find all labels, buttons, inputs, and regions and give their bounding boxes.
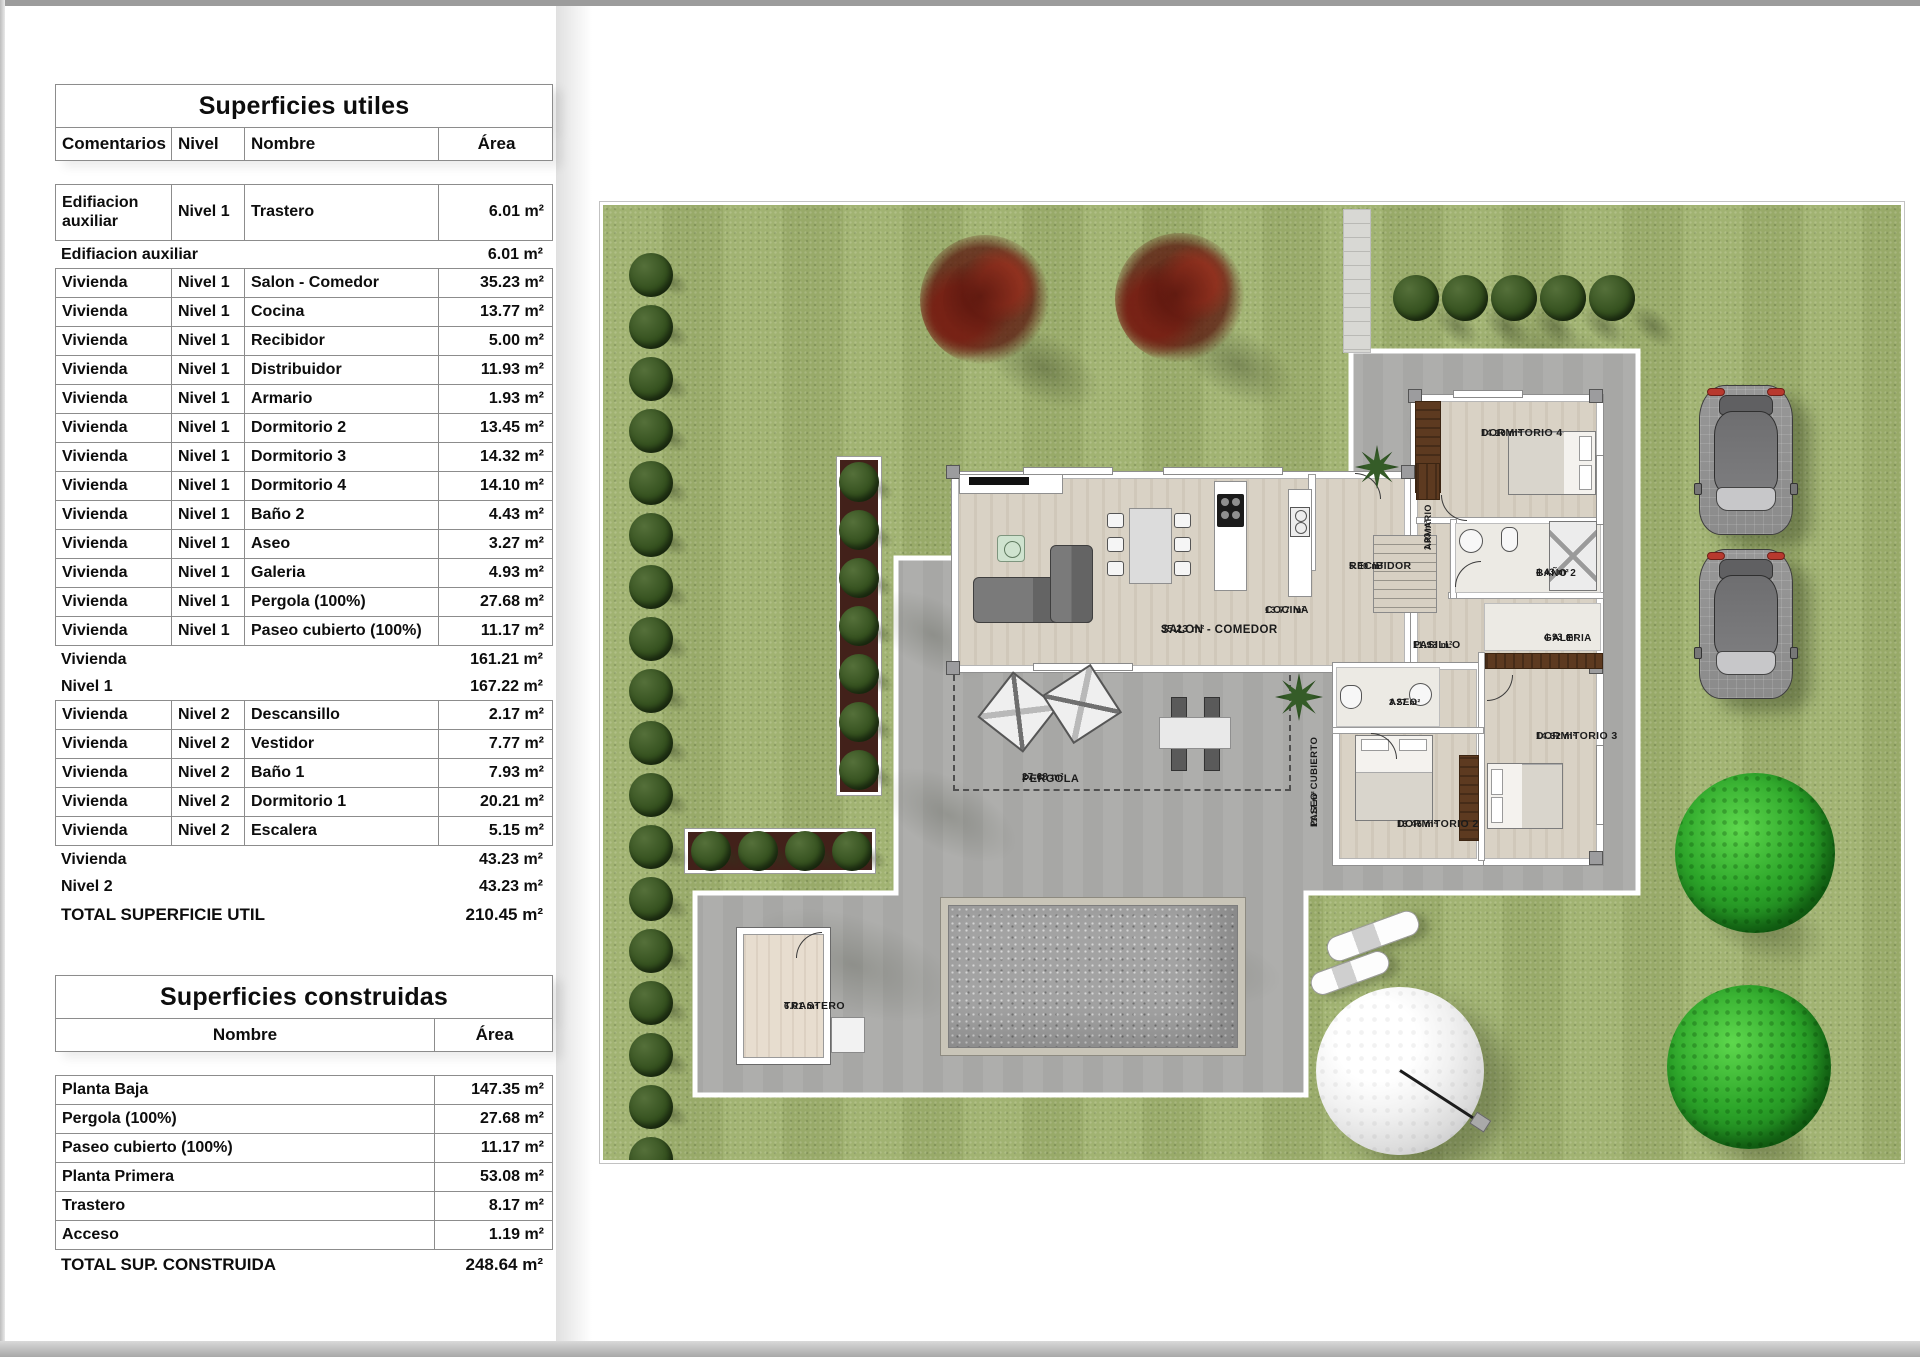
table-superficies-utiles: Superficies utiles ComentariosNivelNombr…	[55, 84, 553, 929]
table-row: TOTAL SUP. CONSTRUIDA248.64 m²	[55, 1250, 553, 1279]
room-area: 4.43 m²	[1536, 567, 1569, 578]
table-title-utiles: Superficies utiles	[55, 84, 553, 128]
table-cell: 14.32 m²	[438, 443, 554, 471]
table-row: Pergola (100%)27.68 m²	[55, 1104, 553, 1134]
table-cell: Nivel 1	[171, 472, 244, 500]
burner	[1232, 498, 1240, 506]
table-superficies-construidas: Superficies construidas NombreÁrea Plant…	[55, 975, 553, 1279]
table-rows-utiles: Edifiacion auxiliarNivel 1Trastero6.01 m…	[55, 184, 553, 929]
summary-label: Nivel 1	[61, 678, 113, 696]
summary-label: Vivienda	[61, 651, 127, 669]
table-title-construidas: Superficies construidas	[55, 975, 553, 1019]
bush	[1442, 275, 1488, 321]
table-cell: Nivel 1	[171, 443, 244, 471]
table-cell: Vivienda	[56, 730, 171, 758]
chair	[1174, 561, 1191, 576]
table-cell: 7.77 m²	[438, 730, 554, 758]
table-row: ViviendaNivel 1Cocina13.77 m²	[55, 297, 553, 327]
table-cell: Vivienda	[56, 788, 171, 816]
room-area: 13.45 m²	[1397, 818, 1437, 830]
bush	[1393, 275, 1439, 321]
table-cell: Paseo cubierto (100%)	[56, 1134, 434, 1162]
table-rows-construidas: Planta Baja147.35 m²Pergola (100%)27.68 …	[55, 1075, 553, 1279]
table-cell: 6.01 m²	[438, 185, 554, 240]
table-cell: Escalera	[244, 817, 438, 845]
table-cell: 11.93 m²	[438, 356, 554, 384]
bano2-toilet	[1501, 527, 1518, 552]
room-area: 6.01 m²	[784, 1000, 819, 1012]
bush	[629, 773, 673, 817]
table-row: ViviendaNivel 1Dormitorio 414.10 m²	[55, 471, 553, 501]
room-area: 11.17 m²	[1309, 791, 1320, 827]
table-cell: 1.93 m²	[438, 385, 554, 413]
chair	[1174, 513, 1191, 528]
bush	[738, 831, 778, 871]
chair	[1107, 561, 1124, 576]
table-cell: 5.15 m²	[438, 817, 554, 845]
pillar	[946, 465, 960, 479]
table-row: ViviendaNivel 1Pergola (100%)27.68 m²	[55, 587, 553, 617]
table-row: Vivienda43.23 m²	[55, 846, 553, 873]
bush	[629, 357, 673, 401]
table-row: ViviendaNivel 1Dormitorio 213.45 m²	[55, 413, 553, 443]
wall-aseo-bottom	[1333, 728, 1483, 733]
pool	[940, 897, 1246, 1056]
page-bottom-edge	[0, 1341, 1920, 1357]
table-cell: Vivienda	[56, 443, 171, 471]
table-row: ViviendaNivel 2Descansillo2.17 m²	[55, 700, 553, 730]
summary-label: TOTAL SUPERFICIE UTIL	[61, 905, 265, 925]
bush	[839, 606, 879, 646]
table-row: Trastero8.17 m²	[55, 1191, 553, 1221]
red-tree	[1115, 233, 1245, 363]
table-row: Edifiacion auxiliarNivel 1Trastero6.01 m…	[55, 184, 553, 241]
table-cell: Nivel 2	[171, 817, 244, 845]
table-cell: 147.35 m²	[434, 1076, 554, 1104]
table-cell: Dormitorio 4	[244, 472, 438, 500]
room-area: 14.10 m²	[1481, 427, 1521, 439]
sofa	[1050, 545, 1093, 623]
table-row: Planta Baja147.35 m²	[55, 1075, 553, 1105]
bush	[629, 877, 673, 921]
aseo-toilet	[1340, 685, 1362, 709]
table-cell: Planta Baja	[56, 1076, 434, 1104]
outdoor-table	[1159, 717, 1231, 749]
bush	[629, 721, 673, 765]
pool-gravel	[948, 905, 1238, 1048]
column-header: Área	[438, 128, 554, 160]
table-header-construidas: NombreÁrea	[55, 1018, 553, 1052]
table-row: Nivel 1167.22 m²	[55, 673, 553, 700]
burner	[1221, 498, 1229, 506]
bush	[629, 669, 673, 713]
table-row: ViviendaNivel 1Salon - Comedor35.23 m²	[55, 268, 553, 298]
table-cell: Nivel 1	[171, 185, 244, 240]
table-cell: Baño 2	[244, 501, 438, 529]
dining-table	[1129, 508, 1172, 584]
table-cell: Vivienda	[56, 588, 171, 616]
table-header-utiles: ComentariosNivelNombreÁrea	[55, 127, 553, 161]
room-area: 11.93 m²	[1413, 639, 1453, 651]
bush	[1540, 275, 1586, 321]
table-cell: Vivienda	[56, 759, 171, 787]
table-row: ViviendaNivel 2Escalera5.15 m²	[55, 816, 553, 846]
table-cell: 7.93 m²	[438, 759, 554, 787]
bush	[629, 409, 673, 453]
table-cell: Vivienda	[56, 817, 171, 845]
table-cell: Aseo	[244, 530, 438, 558]
summary-value: 248.64 m²	[466, 1255, 544, 1275]
bush	[629, 617, 673, 661]
summary-value: 6.01 m²	[488, 246, 543, 264]
table-cell: Descansillo	[244, 701, 438, 729]
table-cell: Dormitorio 2	[244, 414, 438, 442]
bush	[839, 510, 879, 550]
wall-d3-left	[1479, 653, 1484, 860]
green-tree	[1667, 985, 1831, 1149]
bush	[629, 1033, 673, 1077]
room-area: 4.93 m²	[1544, 632, 1577, 643]
table-cell: Nivel 1	[171, 559, 244, 587]
bush	[839, 462, 879, 502]
table-cell: Nivel 1	[171, 385, 244, 413]
page-top-edge	[0, 0, 1920, 6]
bush	[839, 654, 879, 694]
bush	[629, 981, 673, 1025]
table-cell: Vivienda	[56, 298, 171, 326]
table-cell: Nivel 1	[171, 530, 244, 558]
table-row: Vivienda161.21 m²	[55, 646, 553, 673]
chair	[1174, 537, 1191, 552]
table-row: TOTAL SUPERFICIE UTIL210.45 m²	[55, 900, 553, 929]
table-row: ViviendaNivel 2Dormitorio 120.21 m²	[55, 787, 553, 817]
bush	[629, 305, 673, 349]
table-cell: Edifiacion auxiliar	[56, 185, 171, 240]
summary-value: 167.22 m²	[470, 678, 543, 696]
table-cell: Baño 1	[244, 759, 438, 787]
access-walkway	[1343, 209, 1371, 353]
wardrobe-entrance	[1416, 463, 1440, 500]
table-row: ViviendaNivel 1Armario1.93 m²	[55, 384, 553, 414]
table-row: ViviendaNivel 2Vestidor7.77 m²	[55, 729, 553, 759]
pillar	[946, 661, 960, 675]
table-row: ViviendaNivel 1Recibidor5.00 m²	[55, 326, 553, 356]
chair	[1107, 537, 1124, 552]
tv	[969, 477, 1029, 485]
table-cell: 13.77 m²	[438, 298, 554, 326]
table-cell: 14.10 m²	[438, 472, 554, 500]
table-cell: Vivienda	[56, 356, 171, 384]
table-cell: Vivienda	[56, 269, 171, 297]
bush	[629, 461, 673, 505]
pillar	[1589, 851, 1603, 865]
table-cell: Nivel 1	[171, 617, 244, 645]
pillar	[1589, 389, 1603, 403]
table-cell: Nivel 1	[171, 356, 244, 384]
table-cell: Salon - Comedor	[244, 269, 438, 297]
kitchen-sink	[1290, 507, 1310, 537]
bush	[1589, 275, 1635, 321]
table-cell: Nivel 1	[171, 501, 244, 529]
car	[1699, 385, 1793, 535]
bush	[629, 513, 673, 557]
summary-value: 210.45 m²	[466, 905, 544, 925]
table-row: ViviendaNivel 2Baño 17.93 m²	[55, 758, 553, 788]
table-row: ViviendaNivel 1Baño 24.43 m²	[55, 500, 553, 530]
room-area: 13.77 m²	[1265, 604, 1305, 616]
bush	[839, 750, 879, 790]
bush	[629, 929, 673, 973]
planter-horizontal	[685, 829, 875, 873]
table-cell: Vivienda	[56, 327, 171, 355]
bush	[629, 1085, 673, 1129]
table-cell: 4.43 m²	[438, 501, 554, 529]
table-cell: Nivel 1	[171, 269, 244, 297]
room-area: 3.27 m²	[1389, 697, 1421, 708]
table-cell: Distribuidor	[244, 356, 438, 384]
table-cell: Vestidor	[244, 730, 438, 758]
bush	[629, 565, 673, 609]
table-cell: 53.08 m²	[434, 1163, 554, 1191]
table-cell: Nivel 2	[171, 759, 244, 787]
table-cell: Nivel 1	[171, 327, 244, 355]
table-cell: 27.68 m²	[434, 1105, 554, 1133]
table-cell: Nivel 2	[171, 701, 244, 729]
summary-value: 161.21 m²	[470, 651, 543, 669]
table-cell: 11.17 m²	[438, 617, 554, 645]
table-cell: Vivienda	[56, 530, 171, 558]
trastero-annex	[831, 1017, 865, 1053]
table-row: Paseo cubierto (100%)11.17 m²	[55, 1133, 553, 1163]
table-cell: Vivienda	[56, 472, 171, 500]
table-cell: Nivel 1	[171, 298, 244, 326]
table-cell: 13.45 m²	[438, 414, 554, 442]
table-cell: 2.17 m²	[438, 701, 554, 729]
table-cell: Nivel 2	[171, 788, 244, 816]
burner	[1232, 511, 1240, 519]
room-area: 1.93 m²	[1423, 520, 1433, 550]
ac-unit	[997, 535, 1025, 562]
bush	[785, 831, 825, 871]
planter-vertical	[837, 457, 881, 795]
window	[1596, 745, 1604, 825]
panel-superficies-utiles: Superficies utiles ComentariosNivelNombr…	[55, 84, 553, 929]
table-cell: Trastero	[244, 185, 438, 240]
window	[1453, 390, 1523, 398]
bush	[691, 831, 731, 871]
table-row: Nivel 243.23 m²	[55, 873, 553, 900]
table-cell: 8.17 m²	[434, 1192, 554, 1220]
bush	[1491, 275, 1537, 321]
bano2-sink	[1459, 529, 1483, 553]
bed-dormitorio3	[1487, 763, 1563, 829]
table-row: ViviendaNivel 1Galeria4.93 m²	[55, 558, 553, 588]
page-left-edge	[0, 0, 5, 1357]
summary-label: Edifiacion auxiliar	[61, 246, 198, 264]
table-cell: Pergola (100%)	[56, 1105, 434, 1133]
table-row: ViviendaNivel 1Distribuidor11.93 m²	[55, 355, 553, 385]
table-cell: 5.00 m²	[438, 327, 554, 355]
table-cell: Acceso	[56, 1221, 434, 1249]
table-cell: Pergola (100%)	[244, 588, 438, 616]
table-cell: Vivienda	[56, 617, 171, 645]
pillar	[1401, 465, 1415, 479]
window	[1596, 455, 1604, 525]
bush	[839, 702, 879, 742]
shower	[1549, 521, 1597, 591]
room-area: 27.68 m²	[1022, 772, 1064, 785]
column-header: Nivel	[171, 128, 244, 160]
summary-label: Vivienda	[61, 851, 127, 869]
room-area: 5.00 m²	[1349, 560, 1384, 572]
car	[1699, 549, 1793, 699]
table-cell: Galeria	[244, 559, 438, 587]
column-header: Comentarios	[56, 128, 171, 160]
table-cell: 11.17 m²	[434, 1134, 554, 1162]
table-row: ViviendaNivel 1Paseo cubierto (100%)11.1…	[55, 616, 553, 646]
kitchen-counter	[1288, 489, 1312, 597]
bush	[629, 253, 673, 297]
table-cell: Nivel 2	[171, 730, 244, 758]
red-tree	[920, 235, 1050, 365]
bush	[629, 825, 673, 869]
table-cell: Dormitorio 1	[244, 788, 438, 816]
summary-label: TOTAL SUP. CONSTRUIDA	[61, 1255, 276, 1275]
wardrobe-d3	[1485, 653, 1603, 669]
summary-label: Nivel 2	[61, 878, 113, 896]
column-header: Nombre	[244, 128, 438, 160]
table-cell: 27.68 m²	[438, 588, 554, 616]
table-cell: Cocina	[244, 298, 438, 326]
table-cell: Vivienda	[56, 501, 171, 529]
table-cell: 35.23 m²	[438, 269, 554, 297]
table-row: Planta Primera53.08 m²	[55, 1162, 553, 1192]
table-cell: Paseo cubierto (100%)	[244, 617, 438, 645]
table-row: Edifiacion auxiliar6.01 m²	[55, 241, 553, 268]
panel-superficies-construidas: Superficies construidas NombreÁrea Plant…	[55, 975, 553, 1279]
table-cell: 1.19 m²	[434, 1221, 554, 1249]
table-cell: Vivienda	[56, 414, 171, 442]
table-cell: Armario	[244, 385, 438, 413]
table-cell: Nivel 1	[171, 414, 244, 442]
scan-fold-shadow	[556, 6, 592, 1341]
column-header: Área	[434, 1019, 554, 1051]
room-area: 14.32 m²	[1536, 730, 1576, 742]
table-cell: Vivienda	[56, 385, 171, 413]
table-cell: 4.93 m²	[438, 559, 554, 587]
window	[1163, 467, 1283, 475]
table-cell: 20.21 m²	[438, 788, 554, 816]
summary-value: 43.23 m²	[479, 878, 543, 896]
chair	[1107, 513, 1124, 528]
table-row: ViviendaNivel 1Dormitorio 314.32 m²	[55, 442, 553, 472]
bush	[839, 558, 879, 598]
green-tree	[1675, 773, 1835, 933]
table-row: ViviendaNivel 1Aseo3.27 m²	[55, 529, 553, 559]
table-cell: Vivienda	[56, 701, 171, 729]
site-plan: SALON - COMEDOR35.23 m²COCINA13.77 m²REC…	[600, 202, 1904, 1163]
table-cell: 3.27 m²	[438, 530, 554, 558]
bush	[832, 831, 872, 871]
table-cell: Recibidor	[244, 327, 438, 355]
table-row: Acceso1.19 m²	[55, 1220, 553, 1250]
room-area: 35.23 m²	[1161, 623, 1205, 636]
summary-value: 43.23 m²	[479, 851, 543, 869]
table-cell: Dormitorio 3	[244, 443, 438, 471]
table-cell: Trastero	[56, 1192, 434, 1220]
table-cell: Vivienda	[56, 559, 171, 587]
column-header: Nombre	[56, 1019, 434, 1051]
table-cell: Planta Primera	[56, 1163, 434, 1191]
burner	[1221, 511, 1229, 519]
wall-bano2-bottom	[1449, 593, 1603, 598]
table-cell: Nivel 1	[171, 588, 244, 616]
